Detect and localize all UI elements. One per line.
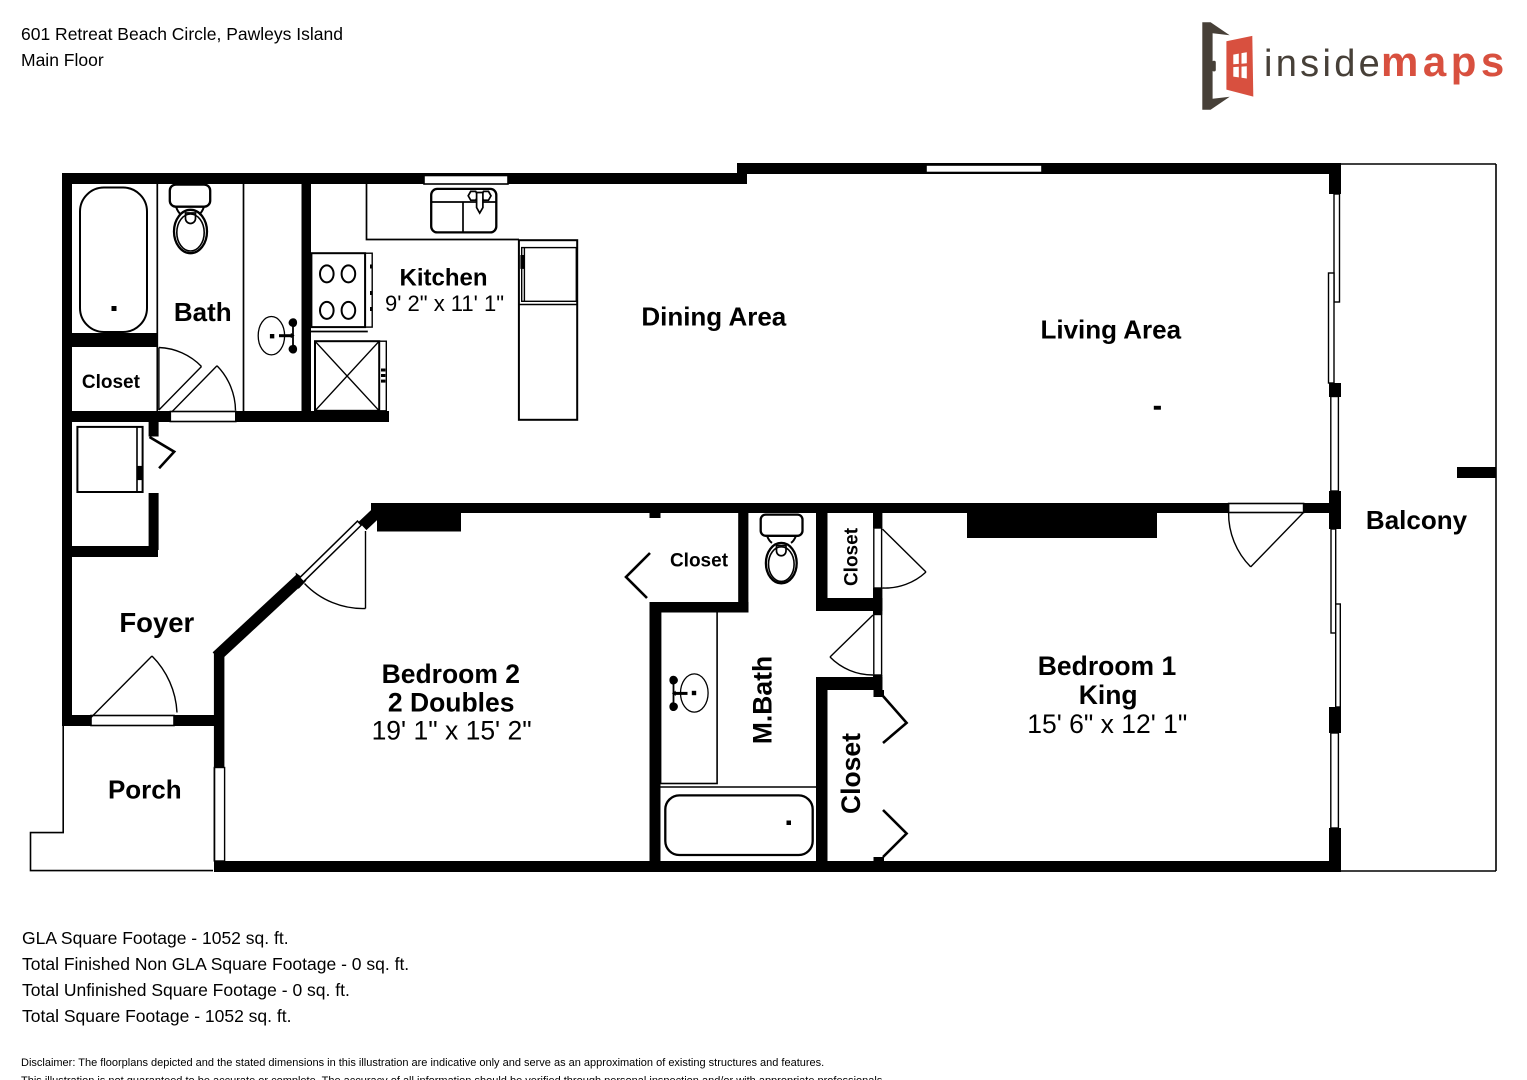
svg-text:Kitchen: Kitchen [399, 265, 487, 292]
svg-text:9' 2" x 11' 1": 9' 2" x 11' 1" [385, 291, 504, 316]
svg-text:19' 1" x 15' 2": 19' 1" x 15' 2" [372, 716, 532, 746]
svg-text:Bedroom 1: Bedroom 1 [1038, 651, 1176, 681]
svg-text:maps: maps [1381, 38, 1509, 85]
svg-text:601 Retreat Beach Circle, Pawl: 601 Retreat Beach Circle, Pawleys Island [21, 24, 343, 44]
svg-text:Closet: Closet [82, 372, 141, 393]
svg-text:Dining Area: Dining Area [641, 302, 786, 332]
svg-text:Bath: Bath [174, 297, 232, 327]
svg-text:Total Finished Non GLA Square: Total Finished Non GLA Square Footage - … [22, 954, 409, 974]
svg-text:Closet: Closet [842, 527, 863, 586]
svg-text:Porch: Porch [108, 775, 182, 805]
svg-text:Disclaimer: The floorplans dep: Disclaimer: The floorplans depicted and … [21, 1057, 824, 1069]
svg-text:Main Floor: Main Floor [21, 50, 104, 70]
svg-text:Living Area: Living Area [1040, 315, 1181, 345]
svg-text:Foyer: Foyer [119, 607, 194, 638]
svg-text:Bedroom 2: Bedroom 2 [382, 659, 520, 689]
svg-text:Closet: Closet [836, 733, 866, 814]
svg-text:GLA Square Footage - 1052 sq.: GLA Square Footage - 1052 sq. ft. [22, 928, 289, 948]
svg-text:Total Square Footage - 1052 sq: Total Square Footage - 1052 sq. ft. [22, 1006, 291, 1026]
svg-text:inside: inside [1264, 43, 1383, 85]
svg-text:2 Doubles: 2 Doubles [388, 687, 515, 717]
svg-text:This illustration is not guara: This illustration is not guaranteed to b… [21, 1075, 885, 1080]
svg-text:Balcony: Balcony [1366, 505, 1468, 535]
svg-text:Total Unfinished Square Footag: Total Unfinished Square Footage - 0 sq. … [22, 980, 350, 1000]
svg-text:Closet: Closet [670, 551, 729, 572]
svg-text:15' 6" x 12' 1": 15' 6" x 12' 1" [1027, 709, 1187, 739]
svg-text:M.Bath: M.Bath [748, 656, 778, 744]
svg-text:King: King [1079, 680, 1138, 710]
